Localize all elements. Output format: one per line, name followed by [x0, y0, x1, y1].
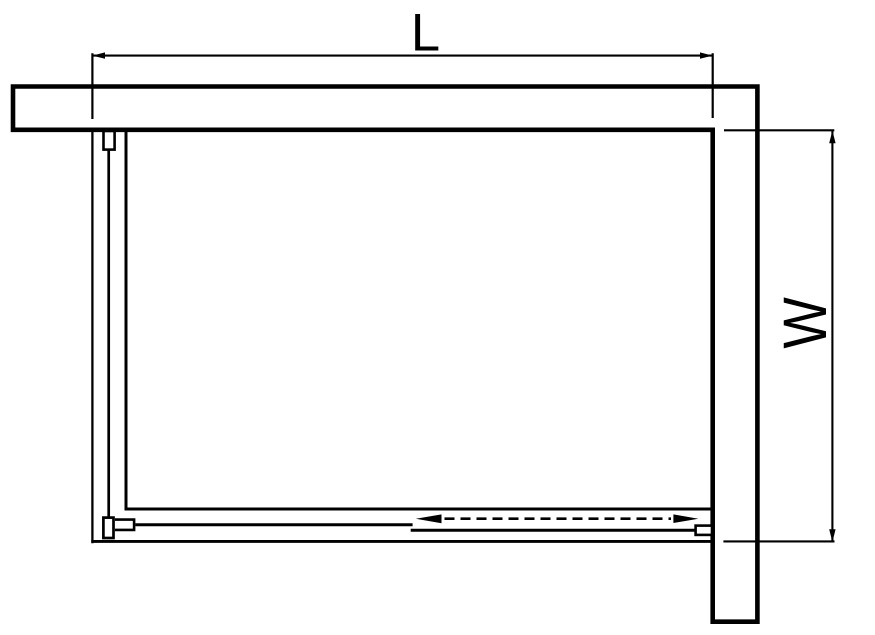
svg-text:L: L	[411, 3, 440, 62]
svg-text:W: W	[772, 297, 840, 349]
